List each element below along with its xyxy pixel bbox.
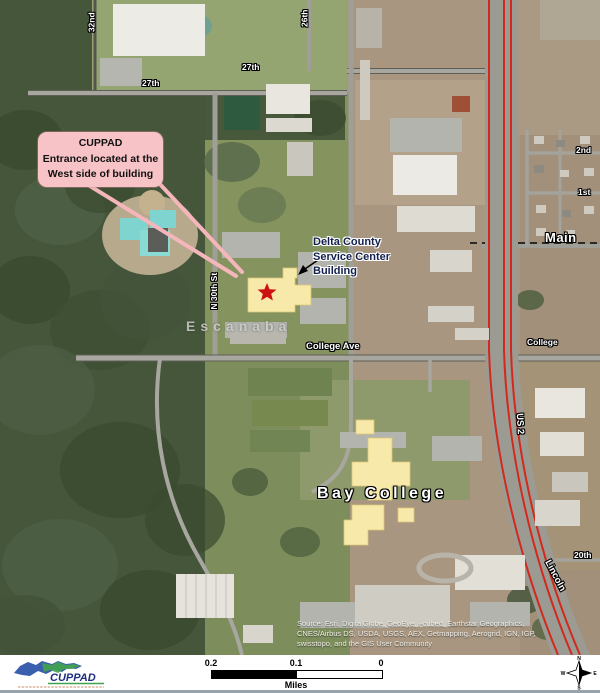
bay-college-building-4 (356, 420, 374, 434)
road-label-32nd: 32nd (88, 12, 97, 32)
road-label-26th: 26th (300, 10, 309, 27)
compass-s: S (577, 686, 581, 691)
compass-n: N (577, 656, 581, 662)
road-label-20th: 20th (574, 551, 591, 560)
north-arrow: N S E W (560, 656, 598, 690)
cuppad-logo: CUPPAD (12, 657, 108, 691)
road-label-2nd: 2nd (576, 146, 591, 155)
service-center-label: Delta County Service Center Building (313, 235, 390, 279)
road-label-college: College (527, 338, 558, 347)
road-label-n-30th-st: N 30th St (210, 273, 219, 310)
campus-label-bay-college: Bay College (317, 486, 447, 502)
road-label-us-2: US 2 (514, 413, 525, 435)
road-label-college-ave: College Ave (306, 342, 360, 352)
map-area: CUPPAD Entrance located at the West side… (0, 0, 600, 655)
callout-title: CUPPAD (79, 136, 123, 152)
city-label-escanaba: Escanaba (186, 319, 291, 333)
cuppad-entrance-callout: CUPPAD Entrance located at the West side… (38, 132, 163, 187)
source-line3: swisstopo, and the GIS User Community (297, 639, 536, 649)
road-label-1st: 1st (578, 188, 590, 197)
map-document: CUPPAD Entrance located at the West side… (0, 0, 600, 693)
service-center-label-line3: Building (313, 264, 390, 279)
road-label-main: Main (545, 231, 577, 244)
scale-label-mid: 0.1 (284, 658, 308, 668)
compass-w: W (561, 671, 566, 677)
road-label-27th-east: 27th (242, 63, 259, 72)
scale-bar-filled-half (212, 671, 297, 678)
service-center-label-line2: Service Center (313, 250, 390, 265)
source-line1: Source: Esri, DigitalGlobe, GeoEye, i-cu… (297, 619, 536, 629)
scale-bar (211, 670, 383, 679)
source-attribution: Source: Esri, DigitalGlobe, GeoEye, i-cu… (297, 619, 536, 648)
service-center-label-line1: Delta County (313, 235, 390, 250)
source-line2: CNES/Airbus DS, USDA, USGS, AEX, Getmapp… (297, 629, 536, 639)
logo-wordmark: CUPPAD (50, 672, 96, 684)
scale-label-left: 0.2 (199, 658, 223, 668)
bay-college-building-3 (398, 508, 414, 522)
aerial-basemap (0, 0, 600, 655)
scale-label-right: 0 (369, 658, 393, 668)
callout-line2: West side of building (48, 167, 153, 183)
scale-unit-label: Miles (274, 680, 318, 690)
road-label-27th-west: 27th (142, 79, 159, 88)
callout-line1: Entrance located at the (43, 152, 159, 168)
compass-e: E (593, 671, 597, 677)
map-footer: CUPPAD 0.2 0.1 0 Miles N S E W (0, 655, 600, 693)
